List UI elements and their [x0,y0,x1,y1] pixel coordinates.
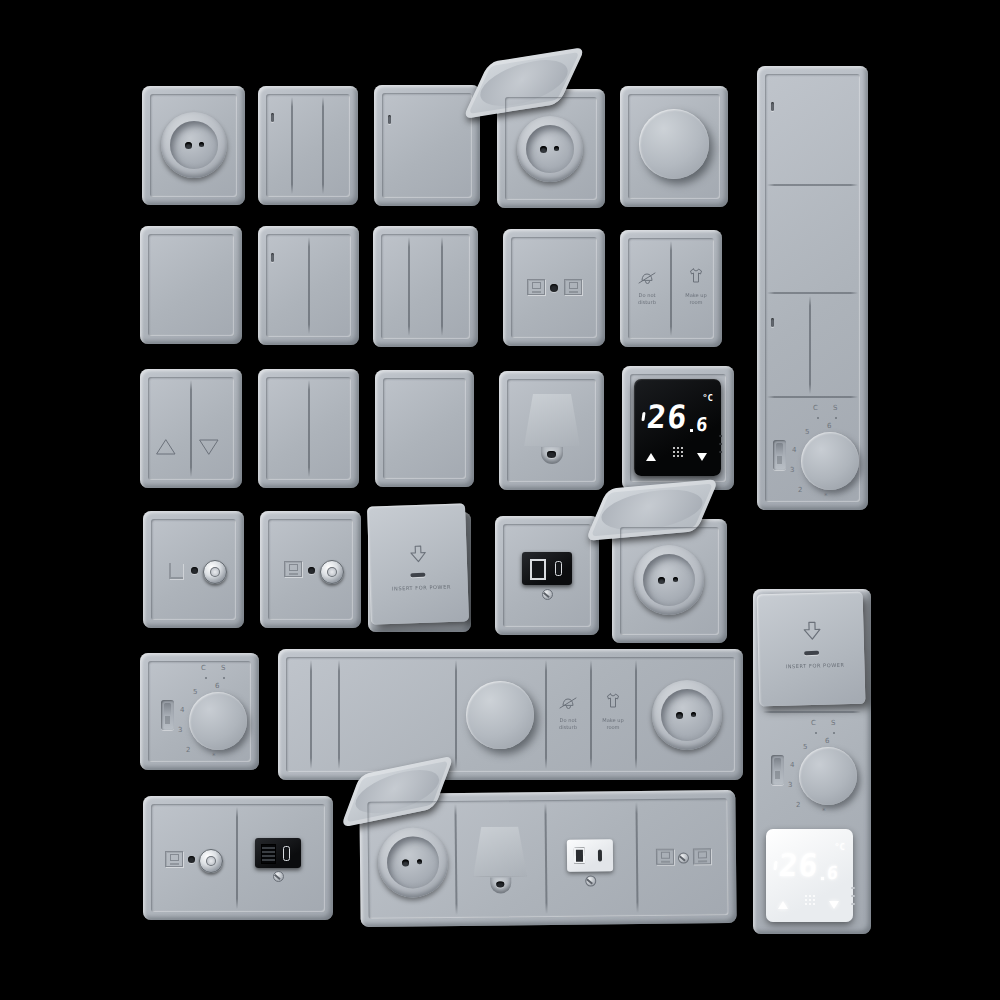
cable-outlet-cover [473,826,528,877]
thermostat-toggle [771,755,784,785]
rocker-divider [441,237,443,336]
socket-well [387,836,439,888]
module-divider [455,660,457,769]
do-not-disturb-icon [557,693,579,715]
indicator-slot [271,113,274,122]
small-hole [308,567,315,574]
temp-up-button [778,901,788,909]
render-stage: C S 6 5 4 3 2 * [0,0,1000,1000]
module-divider [763,711,861,713]
horizontal-strip-plate-2 [359,790,736,927]
flip-lid-socket-open-plate [612,519,727,643]
plate-groove [381,234,470,339]
rocker-divider [322,97,324,194]
dial-thermostat-module: C S 6 5 4 3 2 * [149,658,253,764]
dial-thermostat-module: C S 6 5 4 3 2 * [761,400,865,506]
mode-dot [833,732,835,734]
switch-1-gang-plate [375,370,474,487]
thermostat-dial [799,747,857,805]
dial-mark-3: 3 [790,466,794,474]
frost-mark: * [822,807,826,815]
rocker-divider [590,660,592,769]
socket-pin-right [199,142,204,147]
round-socket-plate [142,86,245,205]
mode-dot [817,417,819,419]
card-slot [804,651,819,655]
screw [585,875,596,886]
insert-card-arrow-icon [406,545,429,570]
socket-well [526,125,575,174]
flip-lid-socket-plate [497,89,605,208]
dimmer-knob [639,109,709,179]
socket-pin-right [691,712,696,717]
usb-a-port [574,848,585,864]
data-port-icon [527,279,545,295]
switch-2-gang-plate [258,369,359,488]
dial-mark-3: 3 [178,726,182,734]
coax-connector [203,560,227,584]
vertical-panel-bottom-right: INSERT FOR POWER C S 6 5 4 3 2 * 26 6 °C [753,589,871,934]
temp-decimal: 6 [695,415,709,434]
thermostat-dial [189,692,247,750]
mode-mark-c: C [813,404,826,412]
tv-sat-outlet-plate [260,511,361,628]
dial-mark-6: 6 [827,422,831,430]
tv-sat-outlet-plate-l [143,511,244,628]
socket-round [517,116,583,182]
module-divider [767,184,858,186]
switch-3-gang-plate [258,86,358,205]
dial-mark-2: 2 [796,801,800,809]
decimal-point [690,429,693,432]
mode-dot [835,417,837,419]
small-hole [191,567,198,574]
heating-indicator [773,861,777,870]
keycard-holder-face: INSERT FOR POWER [757,592,866,707]
usb-charger-plate [495,516,599,635]
coax-connector [320,560,344,584]
thermostat-screen-black: 26 6 °C [634,379,721,476]
menu-dots-icon [673,447,675,449]
mode-dot [815,732,817,734]
data-port-icon [284,561,302,577]
dial-mark-4: 4 [792,446,796,454]
socket-pin-right [673,577,678,582]
screw [273,871,284,882]
data-port-icon [693,848,711,864]
module-divider [635,660,637,769]
plate-groove [382,93,472,198]
socket-well [643,554,695,606]
thermostat-toggle [773,440,786,470]
rocker-divider [338,660,340,769]
module-divider [767,396,858,398]
do-not-disturb-label: Do not disturb [631,292,663,305]
dial-mark-4: 4 [790,761,794,769]
dial-thermostat-module: C S 6 5 4 3 2 * [759,715,863,821]
digital-thermostat-black-plate: 26 6 °C [622,366,734,490]
indicator-slot [271,253,274,262]
data-port-icon [656,849,674,865]
temp-unit: °C [834,843,845,852]
cable-hole [496,881,504,887]
mode-dot [205,677,207,679]
screw [678,853,689,864]
keycard-holder-face: INSERT FOR POWER [367,503,469,624]
rocker-divider [670,241,672,336]
dial-mark-2: 2 [798,486,802,494]
dial-mark-2: 2 [186,746,190,754]
rotary-dimmer-plate [620,86,728,207]
screw [542,589,553,600]
dnd-mur-switch-plate: Do not disturb Make up room [620,230,722,347]
l-emboss-icon [169,563,183,579]
shutter-switch-plate [140,369,242,488]
shutter-up-icon [155,437,177,461]
thermostat-toggle [161,700,174,730]
side-button [851,887,855,889]
horizontal-strip-plate-1: Do not disturb Make up room [278,649,743,780]
rocker-divider [190,380,192,477]
thermostat-screen-white: 26 6 °C [766,829,853,922]
mode-mark-c: C [201,664,214,672]
dial-mark-3: 3 [788,781,792,789]
rocker-divider [308,380,310,477]
socket-round [161,112,227,178]
socket-round [378,827,449,898]
module-divider [236,807,238,909]
dial-thermostat-plate: C S 6 5 4 3 2 * [140,653,259,770]
rocker-divider [308,237,310,334]
center-hole [550,284,558,292]
decimal-point [821,877,824,880]
rocker-divider [408,237,410,336]
temp-decimal: 6 [826,864,839,882]
mode-mark-s: S [221,664,225,672]
socket-pin-left [185,142,192,149]
dial-mark-6: 6 [215,682,219,690]
switch-1-gang-plate [140,226,242,344]
rocker-divider [291,97,293,194]
insert-for-power-label: INSERT FOR POWER [786,662,845,669]
side-button [851,895,855,897]
temp-up-button [646,453,656,461]
dial-mark-5: 5 [803,743,807,751]
temp-down-button [829,901,839,909]
make-up-room-label: Make up room [680,292,712,305]
make-up-room-icon [605,691,621,715]
plate-groove [383,378,466,479]
dial-mark-5: 5 [193,688,197,696]
mode-mark-s: S [833,404,837,412]
socket-pin-left [676,712,683,719]
keycard-switch-plate: INSERT FOR POWER [368,512,471,632]
insert-card-arrow-icon [799,621,824,648]
switch-1-gang-indicator-plate [374,85,480,206]
socket-well [661,689,713,741]
socket-pin-right [554,146,559,151]
temp-integer: 26 [646,401,689,433]
heating-indicator [641,412,645,421]
cable-outlet-plate [499,371,604,490]
socket-pin-left [402,859,409,866]
usb-c-port [283,846,290,861]
do-not-disturb-icon [636,268,658,290]
mode-mark-c: C [811,719,824,727]
temp-down-button [697,453,707,461]
socket-pin-left [658,577,665,584]
data-port-icon [564,279,582,295]
socket-round [634,545,704,615]
media-module-black [255,838,301,868]
insert-for-power-label: INSERT FOR POWER [392,583,451,591]
dial-mark-5: 5 [805,428,809,436]
rocker-divider [310,660,312,769]
cable-hole [547,451,556,458]
side-button [719,435,722,437]
plate-groove [266,94,350,197]
coax-connector [199,849,223,873]
tv-media-combo-plate [143,796,333,920]
temp-unit: °C [702,394,713,403]
dial-mark-6: 6 [825,737,829,745]
switch-2-gang-indicator-plate [258,226,359,345]
side-button [851,903,855,905]
hdmi-port [261,844,276,864]
make-up-room-label: Make up room [597,717,629,730]
usb-module-white [567,839,613,871]
usb-c-port [598,849,602,861]
shutter-down-icon [198,437,220,461]
dial-mark-4: 4 [180,706,184,714]
temp-integer: 26 [778,850,820,881]
vertical-panel-right: C S 6 5 4 3 2 * [757,66,868,510]
usb-a-port [530,559,546,580]
switch-3-gang-plate [373,226,478,347]
module-divider [767,292,858,294]
dimmer-knob [466,681,534,749]
make-up-room-icon [688,266,704,290]
thermostat-dial [801,432,859,490]
twin-data-outlet-plate [503,229,605,346]
plate-groove [148,234,234,336]
side-button [719,443,722,445]
indicator-slot [771,102,774,111]
card-slot [410,573,425,578]
socket-pin-left [540,146,547,153]
usb-module-black [522,552,572,585]
cable-outlet-cover [524,394,580,446]
socket-round [652,680,722,750]
socket-well [170,121,219,170]
frost-mark: * [824,492,828,500]
menu-dots-icon [805,895,807,897]
mode-dot [223,677,225,679]
do-not-disturb-label: Do not disturb [552,717,584,730]
socket-pin-right [417,859,422,864]
side-button [719,451,722,453]
mode-mark-s: S [831,719,835,727]
frost-mark: * [212,752,216,760]
data-port-icon [165,851,183,867]
usb-c-port [555,561,562,576]
module-divider [545,660,547,769]
small-hole [188,856,195,863]
indicator-slot [771,318,774,327]
rocker-divider [809,296,811,394]
indicator-slot [388,115,391,124]
